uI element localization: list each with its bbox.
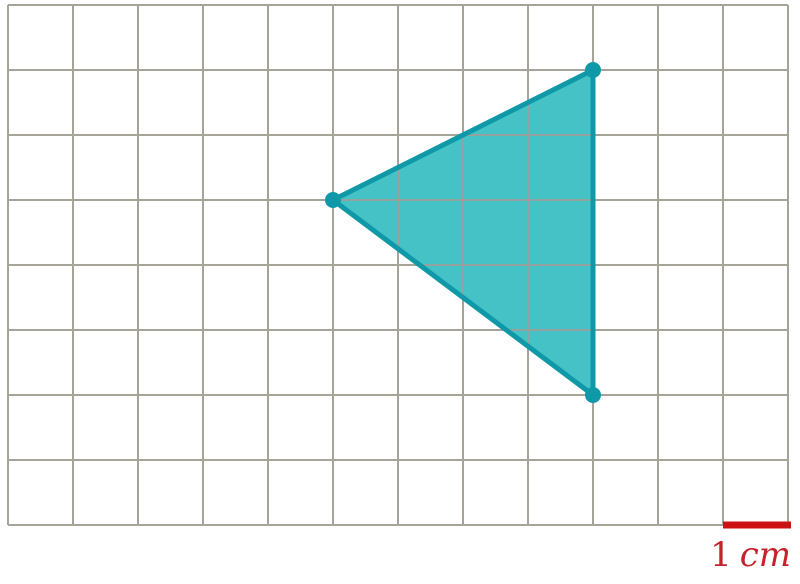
scale-label-unit: cm xyxy=(740,535,791,575)
grid-lines xyxy=(8,5,788,525)
vertex-dot-3 xyxy=(585,387,601,403)
scale-label: 1cm xyxy=(710,538,791,572)
figure-svg xyxy=(0,0,800,584)
geometry-figure: 1cm xyxy=(0,0,800,584)
vertex-dot-2 xyxy=(325,192,341,208)
vertex-dot-1 xyxy=(585,62,601,78)
scale-bar xyxy=(723,522,791,529)
scale-label-number: 1 xyxy=(710,535,732,575)
